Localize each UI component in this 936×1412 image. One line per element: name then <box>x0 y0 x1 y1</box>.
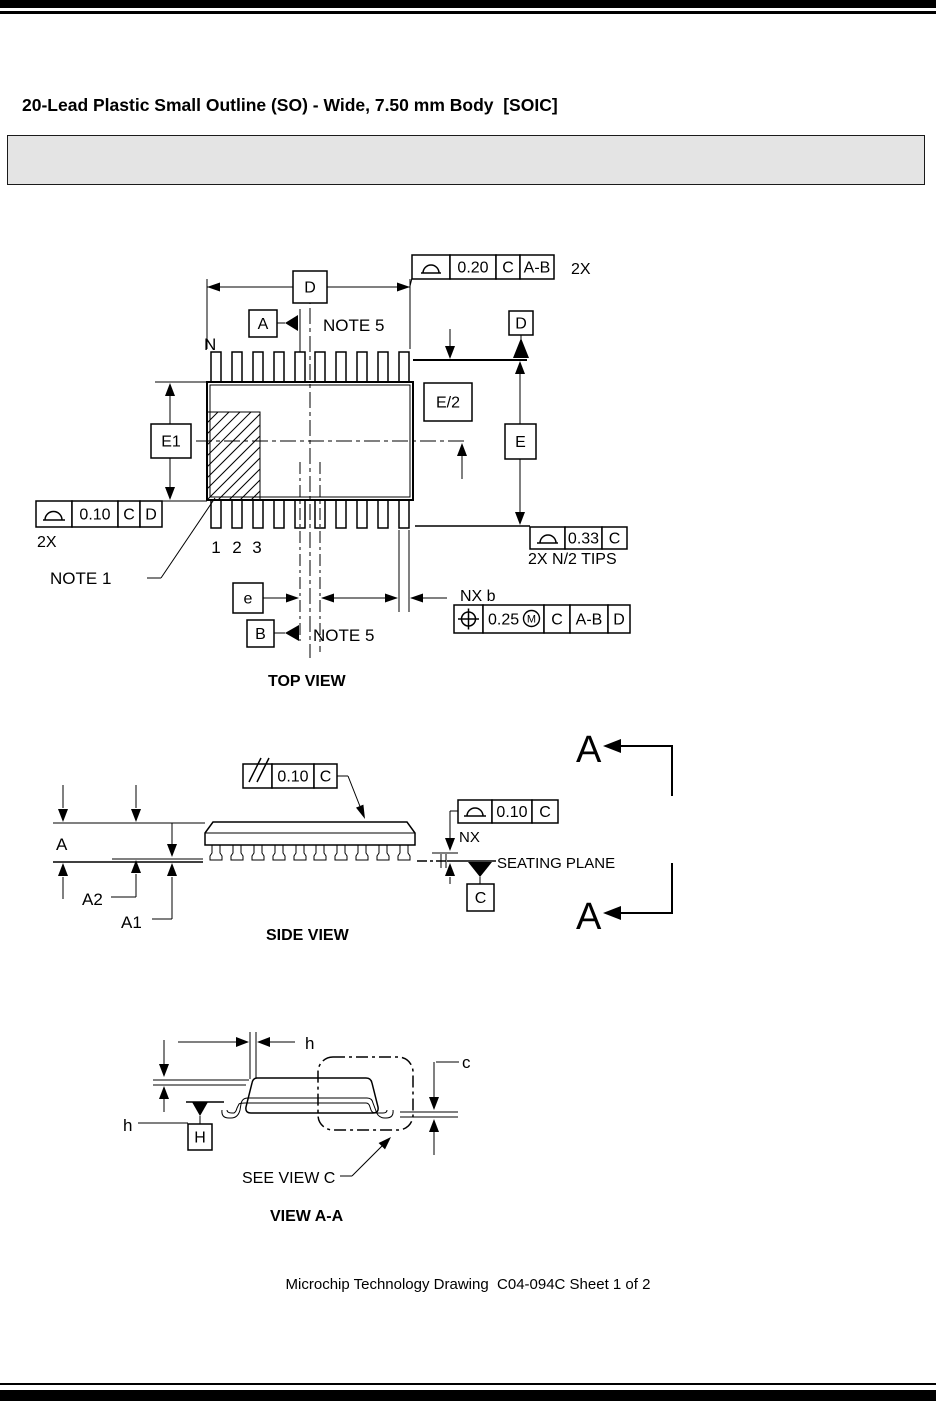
pin-number-labels: 1 2 3 <box>211 538 261 557</box>
fcf-left-qty: 2X <box>37 534 57 551</box>
fcf-tips-ref1: C <box>609 531 621 548</box>
side-leads <box>210 845 410 860</box>
fcf-left-ref2: D <box>145 507 157 524</box>
fcf-left-ref1: C <box>123 507 135 524</box>
fcf-position-ref2: A-B <box>576 612 603 629</box>
datum-D-triangle-icon <box>513 338 529 358</box>
see-view-c-callout: SEE VIEW C <box>242 1137 391 1187</box>
dim-c-label: c <box>462 1053 471 1072</box>
fcf-top-ref1: C <box>502 260 514 277</box>
datum-H-triangle-icon <box>192 1102 208 1116</box>
fcf-profile-ref1: C <box>539 804 551 821</box>
dim-e-label: e <box>244 591 253 608</box>
seating-plane-label: SEATING PLANE <box>497 855 615 872</box>
dim-E1-label: E1 <box>161 434 181 451</box>
dim-E-half-label: E/2 <box>436 395 460 412</box>
dim-b-label: NX b <box>460 588 496 605</box>
note1-label: NOTE 1 <box>50 569 111 588</box>
dim-E-half: E/2 <box>424 329 472 479</box>
mmc-modifier-letter: M <box>527 614 536 626</box>
dim-h-left: h <box>123 1040 249 1135</box>
note5-bottom: NOTE 5 <box>313 626 374 645</box>
datum-C-label: C <box>475 890 487 907</box>
dim-h-left-label: h <box>123 1116 132 1135</box>
fcf-tips-tolerance: 0.33 <box>568 531 599 548</box>
fcf-top-tolerance: 0.20 <box>457 260 488 277</box>
fcf-left-tolerance: 0.10 <box>79 507 110 524</box>
view-a-a-caption: VIEW A-A <box>270 1208 344 1225</box>
fcf-parallelism: 0.10 C <box>243 758 365 819</box>
view-a-a: h h <box>123 1032 471 1225</box>
see-view-c-label: SEE VIEW C <box>242 1170 335 1187</box>
datum-A-label: A <box>258 316 269 333</box>
fcf-profile-tolerance: 0.10 <box>496 804 527 821</box>
fcf-position: 0.25 M C A-B D <box>454 605 630 633</box>
datum-H-label: H <box>194 1130 206 1147</box>
fcf-tips-profile: 0.33 C 2X N/2 TIPS <box>528 527 627 568</box>
dim-A2-label: A2 <box>82 890 103 909</box>
lead-count-N: N <box>204 335 216 354</box>
fcf-position-ref3: D <box>613 612 625 629</box>
datum-D-flag: D <box>413 311 533 360</box>
fcf-position-ref1: C <box>551 612 563 629</box>
fcf-left-profile: 0.10 C D 2X <box>36 501 162 551</box>
note5-top: NOTE 5 <box>323 316 384 335</box>
dim-E-label: E <box>515 434 526 451</box>
drawing-footer: Microchip Technology Drawing C04-094C Sh… <box>0 1276 936 1293</box>
fcf-parallelism-ref1: C <box>320 769 332 786</box>
top-view: D 0.20 C A-B 2X A NOTE <box>36 255 630 690</box>
datum-C-triangle-icon <box>468 862 492 877</box>
nx-label: NX <box>459 829 480 846</box>
dim-h-top-label: h <box>305 1034 314 1053</box>
side-package-outline <box>205 822 415 845</box>
side-view-caption: SIDE VIEW <box>266 927 350 944</box>
detail-view-boundary <box>318 1057 413 1130</box>
technical-drawing-canvas: D 0.20 C A-B 2X A NOTE <box>0 0 936 1412</box>
aa-body-outline <box>222 1078 458 1118</box>
datasheet-page: 20-Lead Plastic Small Outline (SO) - Wid… <box>0 0 936 1412</box>
datum-D-label: D <box>515 316 527 333</box>
dim-h-top: h <box>178 1032 314 1079</box>
datum-A-callout: A <box>249 310 298 337</box>
side-view: A A2 A1 <box>53 729 672 944</box>
section-arrow-top: A <box>576 729 672 796</box>
fcf-top-profile: 0.20 C A-B 2X <box>410 255 591 286</box>
fcf-position-tolerance: 0.25 <box>488 612 519 629</box>
dim-A1-label: A1 <box>121 913 142 932</box>
datum-B-triangle-icon <box>285 625 299 641</box>
dims-A-A1-A2: A A2 A1 <box>53 785 205 932</box>
pin-number-2: 2 <box>232 538 241 557</box>
fcf-top-qty: 2X <box>571 261 591 278</box>
section-label-top: A <box>576 729 602 771</box>
datum-H-flag: H <box>186 1102 224 1150</box>
dim-A-label: A <box>56 835 68 854</box>
bottom-border-line <box>0 1383 936 1385</box>
fcf-parallelism-tolerance: 0.10 <box>277 769 308 786</box>
datum-B-label: B <box>255 626 266 643</box>
pin1-index-hatch <box>207 412 260 500</box>
section-arrow-bottom: A <box>576 863 672 938</box>
dim-e-and-b: e NX b <box>233 530 496 613</box>
fcf-top-ref2: A-B <box>524 260 551 277</box>
fcf-tips-qty: 2X N/2 TIPS <box>528 551 617 568</box>
bottom-border-bar <box>0 1390 936 1401</box>
top-view-caption: TOP VIEW <box>268 673 347 690</box>
pin-number-3: 3 <box>252 538 261 557</box>
datum-B-callout: B <box>247 620 299 647</box>
pin-number-1: 1 <box>211 538 220 557</box>
section-label-bottom: A <box>576 896 602 938</box>
gull-wing-lead-inner <box>227 1103 387 1113</box>
datum-A-triangle-icon <box>285 315 298 331</box>
dim-D: D <box>207 271 410 349</box>
dim-c: c <box>429 1053 471 1155</box>
dim-D-label: D <box>304 280 316 297</box>
